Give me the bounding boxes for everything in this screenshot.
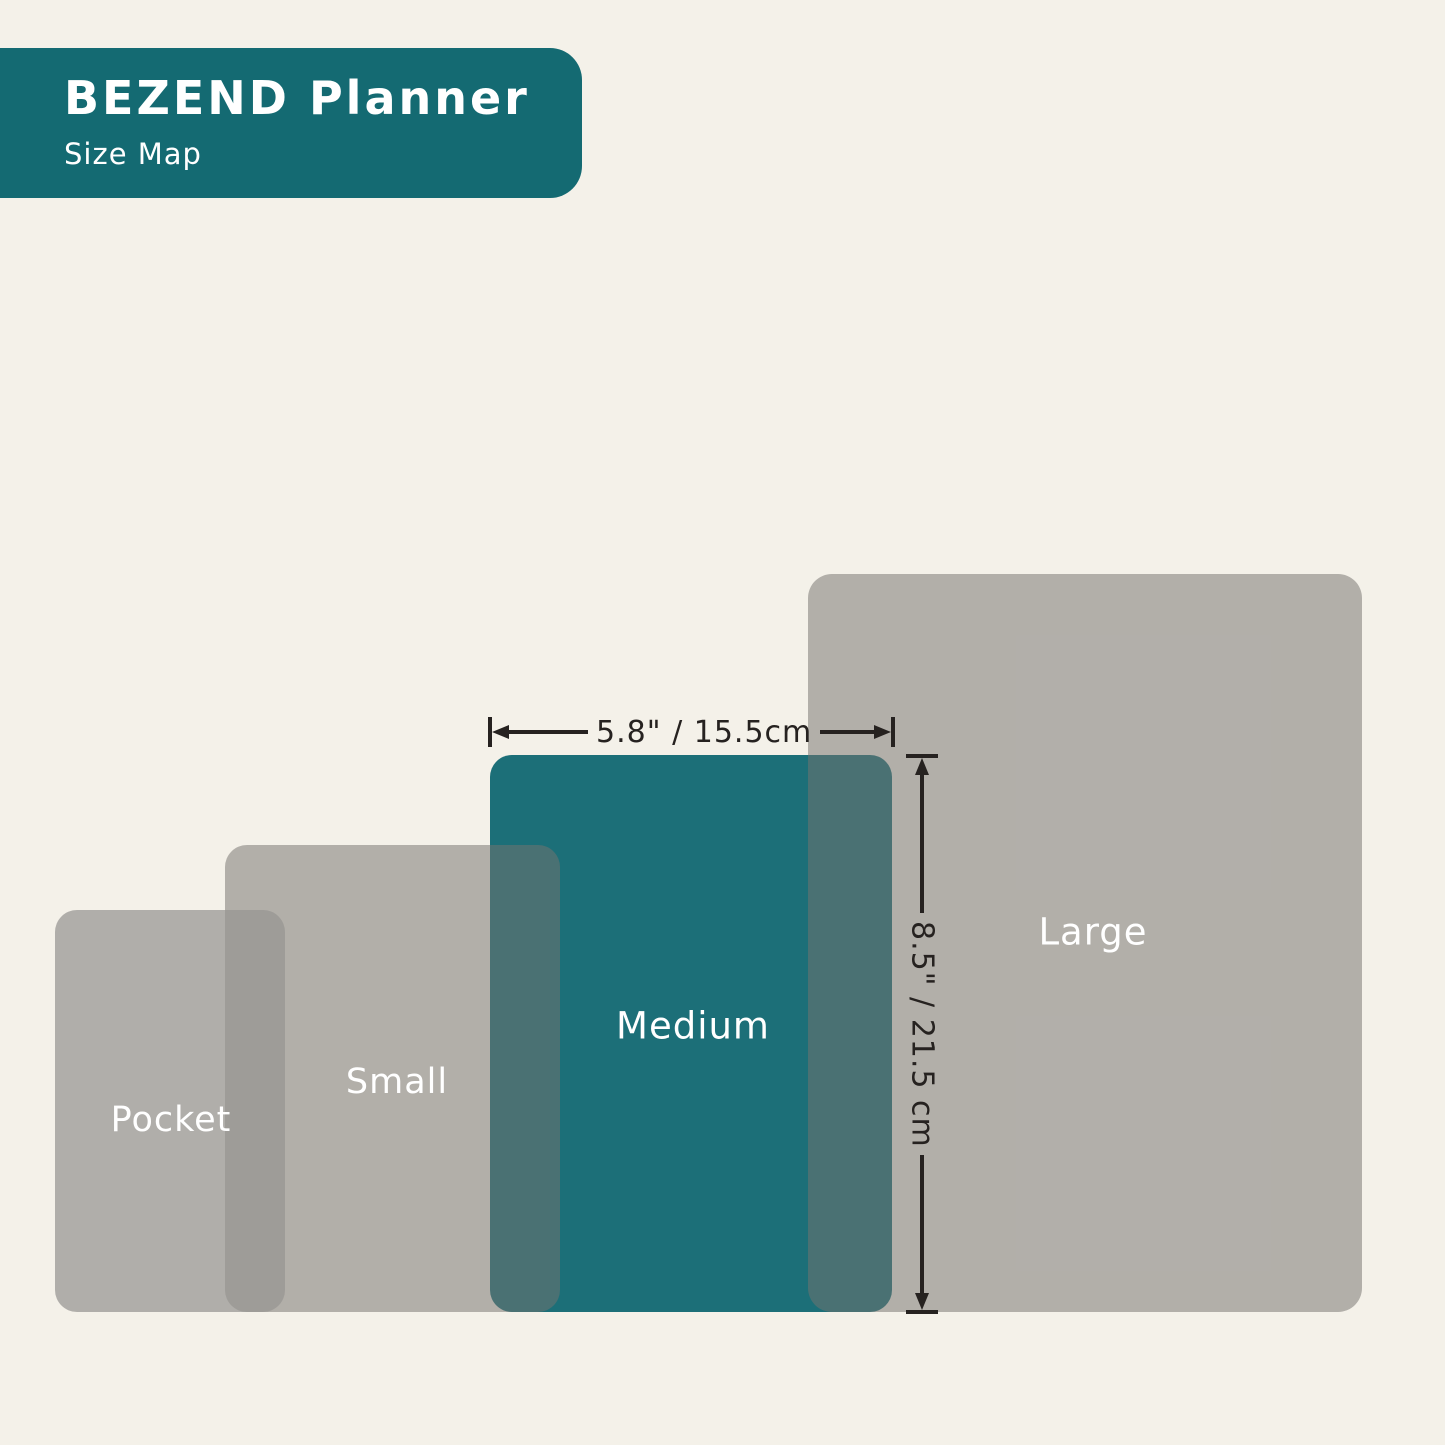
dimension-tick-right [891, 717, 895, 747]
brand-title: BEZEND Planner [64, 68, 582, 128]
height-dimension-label: 8.5" / 21.5 cm [905, 913, 940, 1156]
dimension-line-right [820, 730, 874, 734]
dimension-line-left [509, 730, 588, 734]
arrowhead-left-icon [492, 725, 509, 739]
size-label-medium: Medium [616, 1005, 770, 1048]
size-map-infographic: BEZEND Planner Size Map Pocket Small Med… [0, 0, 1445, 1445]
dimension-line-bottom [920, 1155, 924, 1293]
dimension-line-top [920, 775, 924, 913]
arrowhead-down-icon [915, 1293, 929, 1310]
height-dimension-annotation: 8.5" / 21.5 cm [902, 754, 942, 1314]
dimension-tick-bottom [906, 1310, 938, 1314]
arrowhead-up-icon [915, 758, 929, 775]
header-banner: BEZEND Planner Size Map [0, 48, 582, 198]
size-label-small: Small [346, 1062, 448, 1102]
size-label-large: Large [1038, 911, 1147, 954]
width-dimension-label: 5.8" / 15.5cm [588, 715, 820, 750]
page-subtitle: Size Map [64, 134, 582, 174]
size-label-pocket: Pocket [111, 1100, 232, 1140]
arrowhead-right-icon [874, 725, 891, 739]
width-dimension-annotation: 5.8" / 15.5cm [488, 711, 895, 753]
